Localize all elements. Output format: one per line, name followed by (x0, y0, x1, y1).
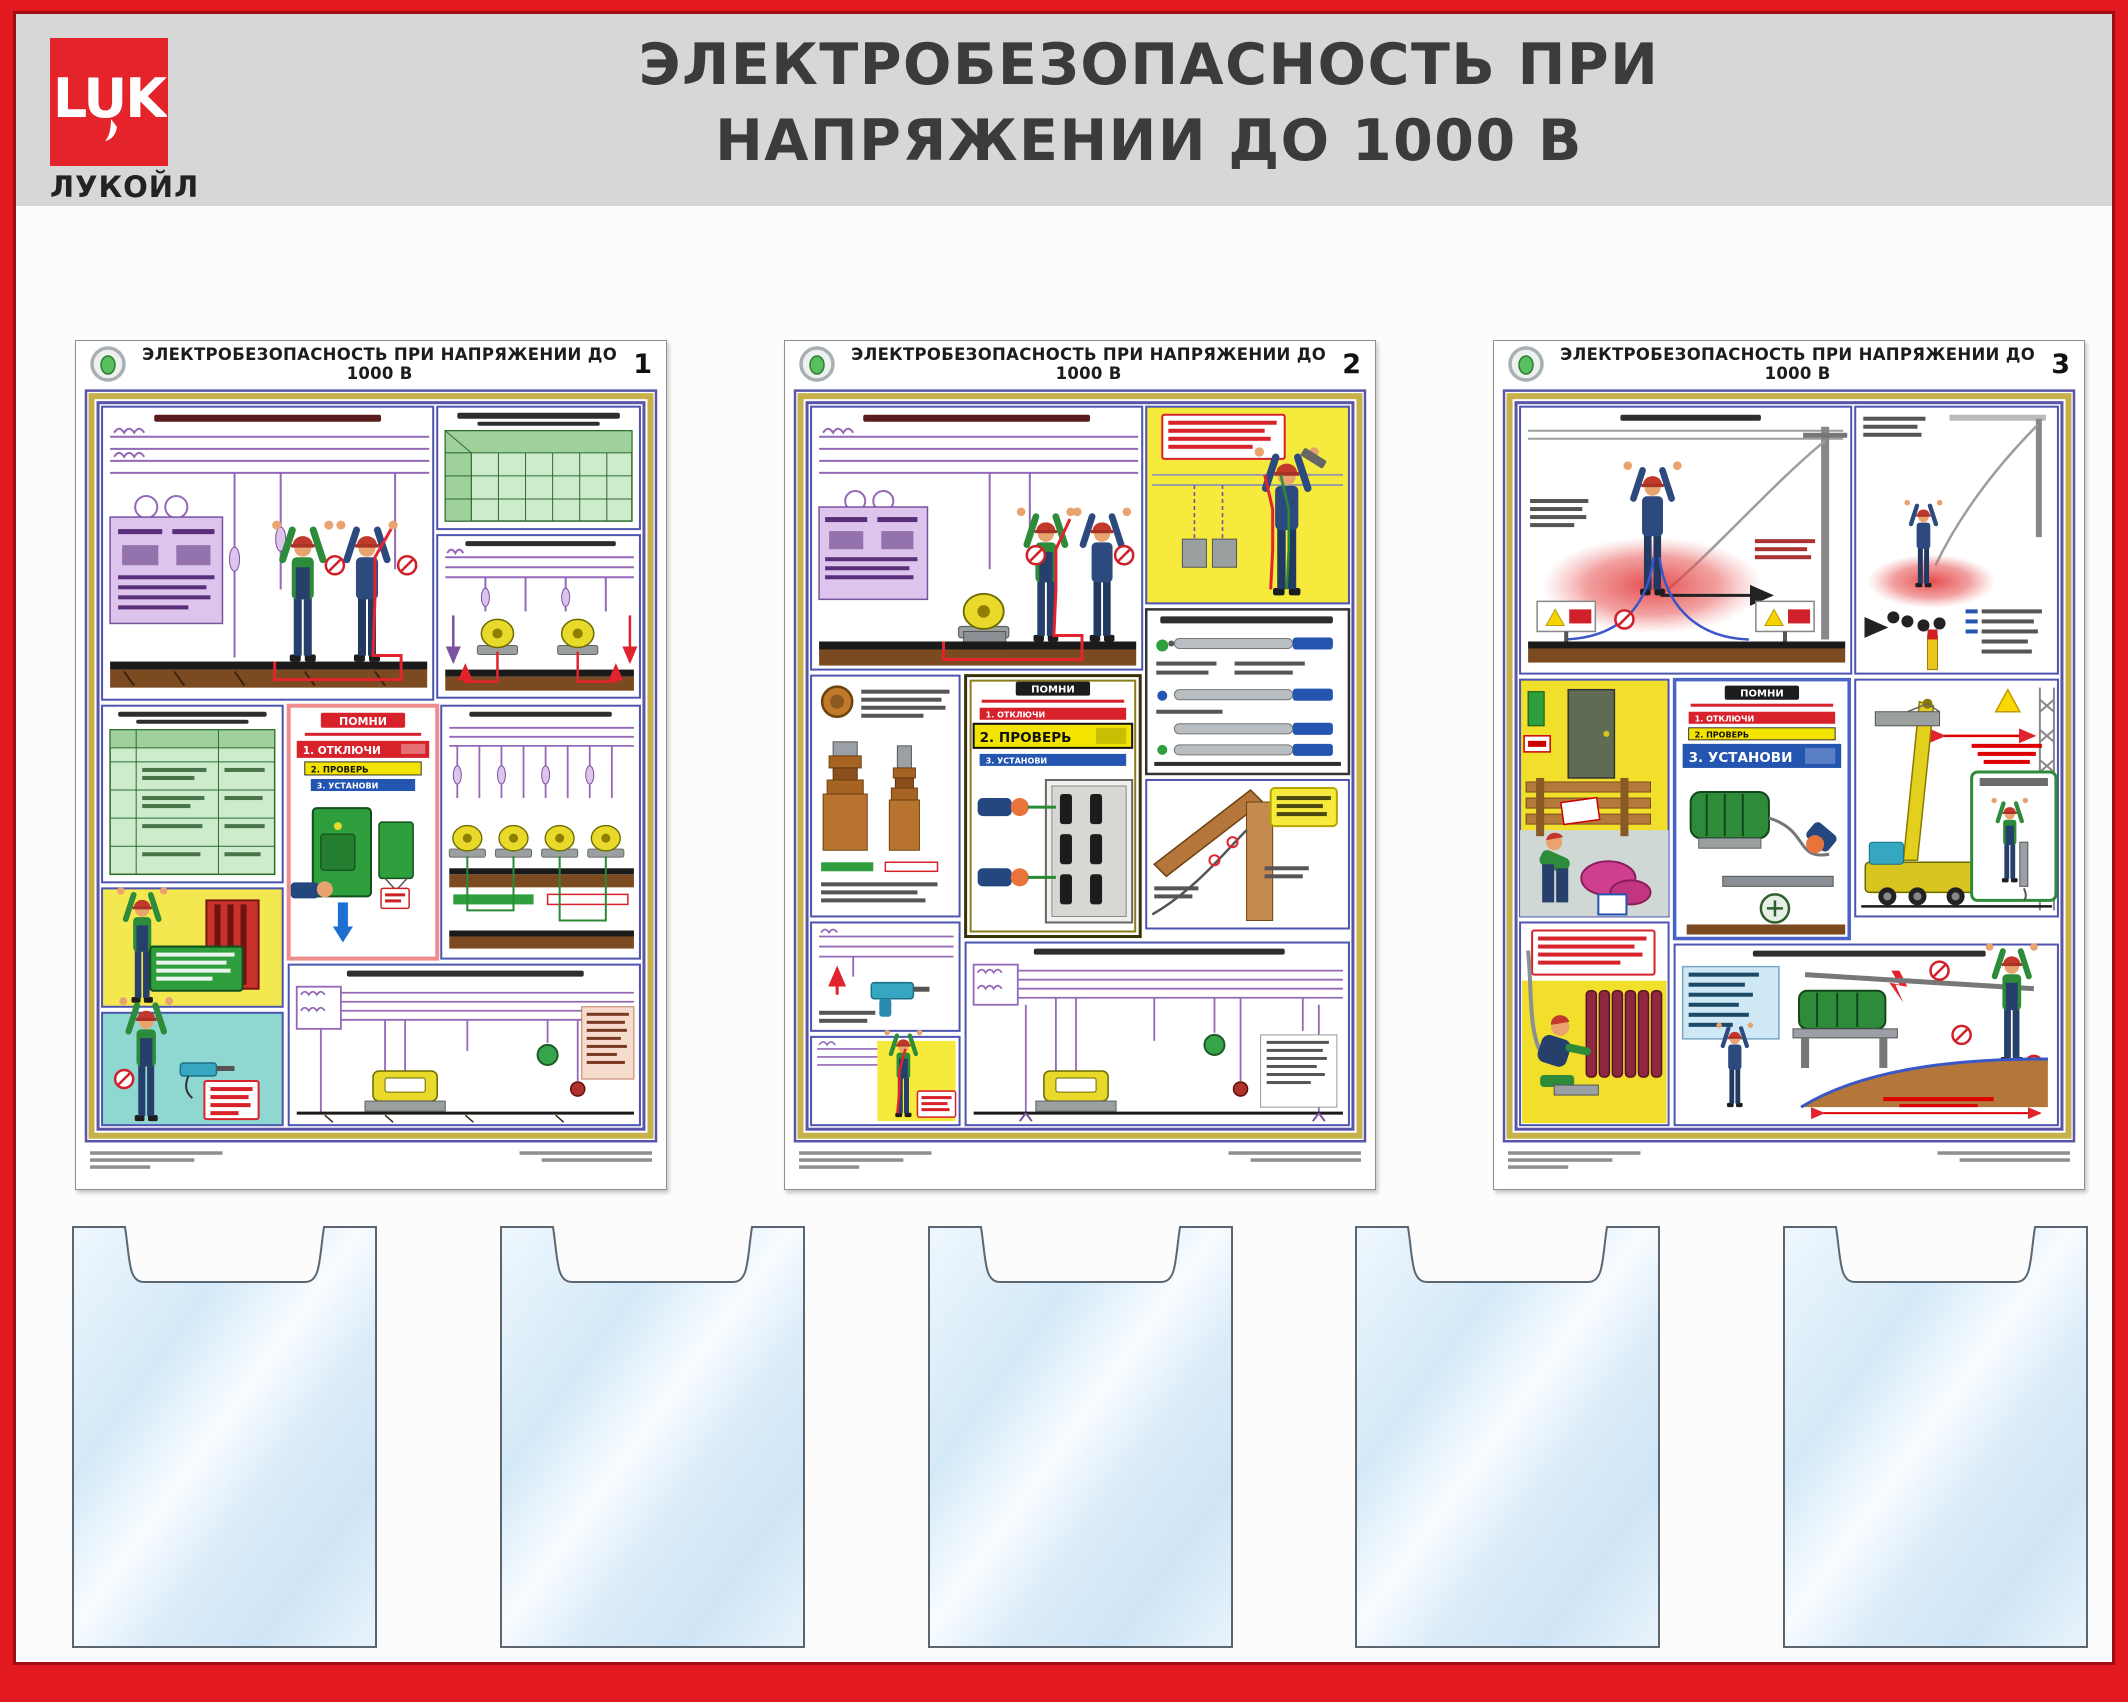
panel-current-effects-table (102, 706, 283, 883)
stand-title-line1: ЭЛЕКТРОБЕЗОПАСНОСТЬ ПРИ (226, 28, 2072, 104)
poster-1-art: ПОМНИ 1. ОТКЛЮЧИ 2. ПРОВЕРЬ 3. УСТАНОВИ (76, 387, 666, 1189)
poster-2-art: ПОМНИ 1. ОТКЛЮЧИ 2. ПРОВЕРЬ 3. УСТАНОВИ (785, 387, 1375, 1189)
panel-step-voltage (1520, 407, 1851, 674)
panel-worker-hammering (1146, 407, 1349, 604)
step-1: 1. ОТКЛЮЧИ (1695, 714, 1755, 723)
plastic-pocket-5 (1782, 1225, 2089, 1649)
poster-3: ЭЛЕКТРОБЕЗОПАСНОСТЬ ПРИ НАПРЯЖЕНИИ ДО 10… (1493, 340, 2085, 1190)
panel-worker-at-panel (102, 887, 283, 1007)
panel-danger-of-touch (811, 407, 1142, 670)
poster-2-number: 2 (1342, 349, 1361, 380)
posters-row: ЭЛЕКТРОБЕЗОПАСНОСТЬ ПРИ НАПРЯЖЕНИИ ДО 10… (75, 340, 2085, 1190)
panel-insulators (811, 676, 960, 917)
poster-emblem-icon (1508, 346, 1544, 382)
step-3: 3. УСТАНОВИ (986, 756, 1048, 765)
step-1: 1. ОТКЛЮЧИ (303, 745, 381, 757)
panel-disconnect-before-drill (811, 922, 960, 1030)
poster-3-number: 3 (2051, 349, 2070, 380)
reminder-title: ПОМНИ (1740, 689, 1784, 700)
poster-footnotes (799, 1151, 1361, 1169)
poster-1-header: ЭЛЕКТРОБЕЗОПАСНОСТЬ ПРИ НАПРЯЖЕНИИ ДО 10… (76, 341, 666, 387)
panel-voltage-indicators (1146, 609, 1349, 774)
plastic-pocket-1 (71, 1225, 378, 1649)
panel-reminder-steps: ПОМНИ 1. ОТКЛЮЧИ 2. ПРОВЕРЬ 3. УСТАНОВИ (966, 676, 1141, 937)
plastic-pocket-2 (499, 1225, 806, 1649)
stand-title-line2: НАПРЯЖЕНИИ ДО 1000 В (226, 104, 2072, 180)
panel-reminder-steps: ПОМНИ 1. ОТКЛЮЧИ 2. ПРОВЕРЬ 3. УСТАНОВИ (289, 706, 438, 959)
step-2: 2. ПРОВЕРЬ (1695, 730, 1749, 739)
lukoil-logo-letters: LUK (53, 67, 167, 130)
panel-danger-of-touch (102, 407, 433, 700)
poster-1-illustration: ПОМНИ 1. ОТКЛЮЧИ 2. ПРОВЕРЬ 3. УСТАНОВИ (84, 387, 658, 1185)
poster-1-title: ЭЛЕКТРОБЕЗОПАСНОСТЬ ПРИ НАПРЯЖЕНИИ ДО 10… (136, 345, 623, 383)
panel-resistance-table (437, 407, 640, 529)
panel-carrying-long-objects (1675, 943, 2058, 1125)
poster-3-header: ЭЛЕКТРОБЕЗОПАСНОСТЬ ПРИ НАПРЯЖЕНИИ ДО 10… (1494, 341, 2084, 387)
lukoil-logo-box: LUK (50, 38, 168, 166)
poster-2-header: ЭЛЕКТРОБЕЗОПАСНОСТЬ ПРИ НАПРЯЖЕНИИ ДО 10… (785, 341, 1375, 387)
poster-emblem-icon (799, 346, 835, 382)
plastic-pocket-3 (927, 1225, 1234, 1649)
panel-fallen-wire (1855, 407, 2058, 674)
panel-electrocuted-worker (811, 1030, 960, 1125)
poster-2-illustration: ПОМНИ 1. ОТКЛЮЧИ 2. ПРОВЕРЬ 3. УСТАНОВИ (793, 387, 1367, 1185)
poster-footnotes (90, 1151, 652, 1169)
panel-house-service-drop (1146, 780, 1349, 929)
panel-reminder-steps: ПОМНИ 1. ОТКЛЮЧИ 2. ПРОВЕРЬ 3. УСТАНОВИ (1675, 680, 1850, 939)
reminder-title: ПОМНИ (339, 715, 387, 728)
panel-wiring-schematic (289, 965, 640, 1126)
poster-3-illustration: ПОМНИ 1. ОТКЛЮЧИ 2. ПРОВЕРЬ 3. УСТАНОВИ (1502, 387, 2076, 1185)
step-3: 3. УСТАНОВИ (1689, 750, 1793, 766)
poster-1-number: 1 (633, 349, 652, 380)
panel-radiator-hazard (1520, 922, 1669, 1125)
step-2: 2. ПРОВЕРЬ (311, 765, 369, 775)
lukoil-logo: LUK ЛУКОЙЛ (50, 38, 168, 204)
poster-2: ЭЛЕКТРОБЕЗОПАСНОСТЬ ПРИ НАПРЯЖЕНИИ ДО 10… (784, 340, 1376, 1190)
poster-3-title: ЭЛЕКТРОБЕЗОПАСНОСТЬ ПРИ НАПРЯЖЕНИИ ДО 10… (1554, 345, 2041, 383)
reminder-title: ПОМНИ (1031, 685, 1075, 696)
stand-title: ЭЛЕКТРОБЕЗОПАСНОСТЬ ПРИ НАПРЯЖЕНИИ ДО 10… (226, 28, 2072, 180)
panel-fenced-work-area (1520, 680, 1669, 917)
panel-crane-near-lines (1855, 680, 2058, 917)
stand-board: LUK ЛУКОЙЛ ЭЛЕКТРОБЕЗОПАСНОСТЬ ПРИ НАПРЯ… (16, 14, 2112, 1662)
insulator-stack-1 (823, 742, 867, 850)
panel-neutral-grounding-schematic (966, 943, 1349, 1126)
step-3: 3. УСТАНОВИ (317, 782, 379, 791)
step-2: 2. ПРОВЕРЬ (980, 730, 1072, 746)
stand-header: LUK ЛУКОЙЛ ЭЛЕКТРОБЕЗОПАСНОСТЬ ПРИ НАПРЯ… (16, 14, 2112, 206)
lukoil-logo-icon: LUK (51, 39, 167, 165)
pockets-row (71, 1225, 2089, 1649)
plastic-pocket-4 (1354, 1225, 1661, 1649)
poster-2-title: ЭЛЕКТРОБЕЗОПАСНОСТЬ ПРИ НАПРЯЖЕНИИ ДО 10… (845, 345, 1332, 383)
poster-footnotes (1508, 1151, 2070, 1169)
lukoil-logo-caption: ЛУКОЙЛ (50, 170, 168, 204)
poster-3-art: ПОМНИ 1. ОТКЛЮЧИ 2. ПРОВЕРЬ 3. УСТАНОВИ (1494, 387, 2084, 1189)
jackhammer-inset (1972, 772, 2056, 900)
poster-emblem-icon (90, 346, 126, 382)
poster-1: ЭЛЕКТРОБЕЗОПАСНОСТЬ ПРИ НАПРЯЖЕНИИ ДО 10… (75, 340, 667, 1190)
panel-current-through-ground (437, 535, 640, 698)
panel-grounding-circuit (441, 706, 640, 959)
panel-worker-with-drill (102, 997, 283, 1125)
step-1: 1. ОТКЛЮЧИ (986, 710, 1045, 719)
